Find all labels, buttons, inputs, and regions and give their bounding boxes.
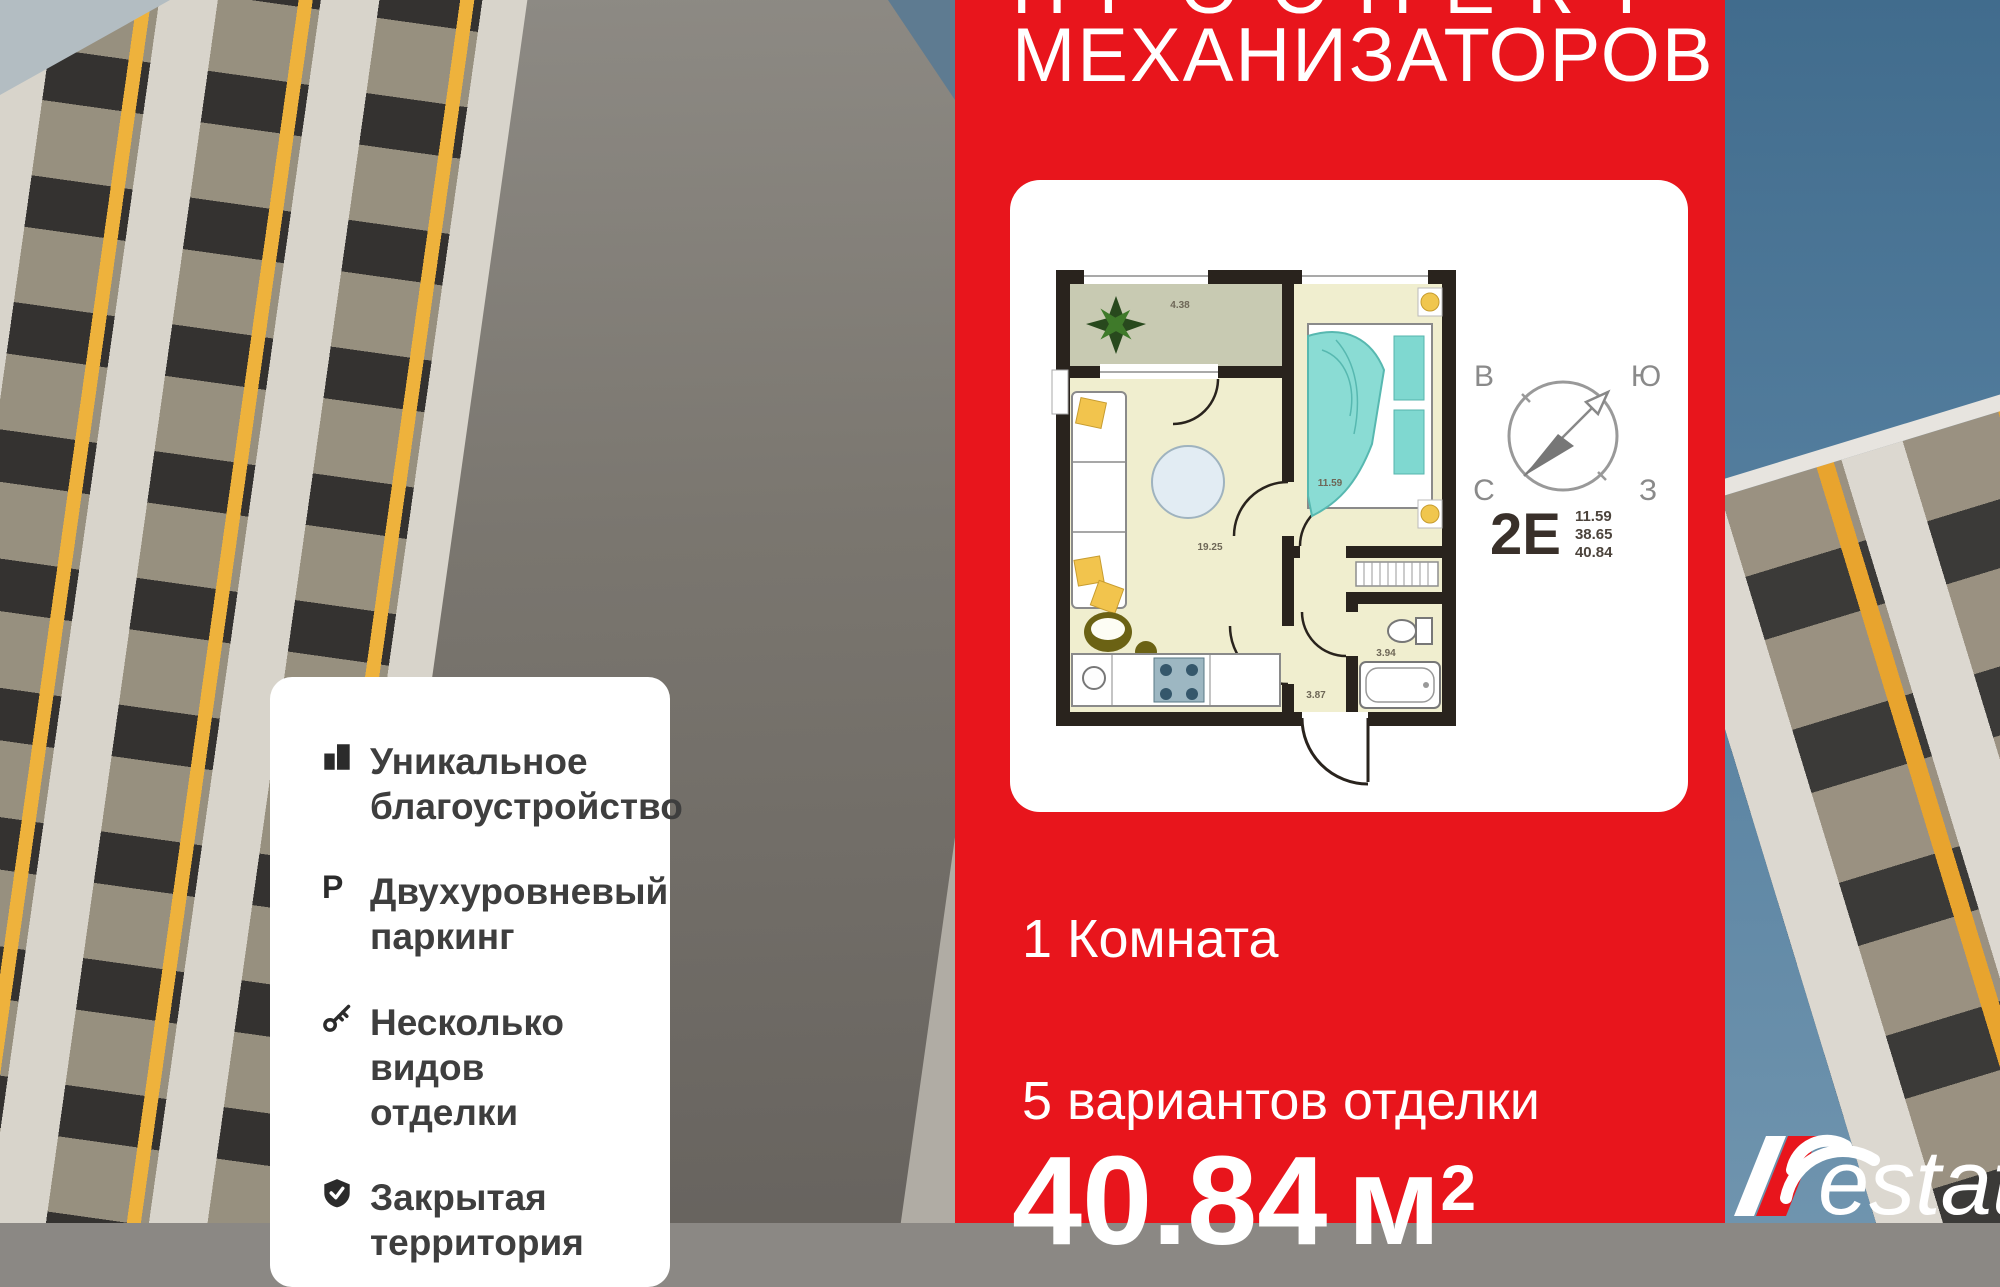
compass-south-label: Ю — [1631, 360, 1661, 393]
bedroom-area-label: 11.59 — [1318, 478, 1343, 489]
unit-areas-list: 11.59 38.65 40.84 — [1575, 506, 1613, 562]
unit-area-living: 11.59 — [1575, 508, 1613, 526]
round-table — [1152, 446, 1224, 518]
entry-door — [1302, 712, 1368, 784]
room-count: 1 Комната — [1022, 908, 1278, 970]
shield-icon — [322, 1178, 352, 1208]
bathroom-area-label: 3.94 — [1376, 648, 1396, 659]
toilet — [1388, 618, 1432, 644]
restate-watermark: estate — [1722, 1112, 2000, 1223]
brand-name-text: estate — [1818, 1132, 2000, 1223]
features-card: Уникальное благоустройство Р Двухуровнев… — [270, 677, 670, 1287]
living-area-label: 19.25 — [1197, 542, 1222, 553]
key-icon — [322, 1003, 352, 1033]
bathtub — [1360, 662, 1440, 708]
compass-east-label: В — [1474, 360, 1494, 393]
sofa — [1072, 392, 1126, 614]
complex-title-line2: МЕХАНИЗАТОРОВ — [1012, 18, 1715, 94]
feature-text: Закрытая территория — [370, 1175, 584, 1265]
feature-text: Несколько видов отделки — [370, 1000, 650, 1135]
right-building-facade — [1725, 336, 2000, 1223]
hallway-area-label: 3.87 — [1306, 690, 1326, 701]
kitchen-counter — [1072, 654, 1280, 706]
total-area: 40.84м2 — [1012, 1138, 1476, 1264]
floor-plan-card: 4.38 11.59 19.25 3.94 3.87 В Ю С З 2Е 11… — [1010, 180, 1688, 812]
feature-text: Уникальное благоустройство — [370, 739, 683, 829]
right-building-photo — [1725, 0, 2000, 1223]
parking-icon: Р — [322, 872, 352, 902]
area-superscript: 2 — [1441, 1152, 1477, 1224]
compass-icon: В Ю С З — [1460, 330, 1670, 508]
unit-info: 2Е 11.59 38.65 40.84 — [1490, 506, 1613, 564]
feature-item-parking: Р Двухуровневый паркинг — [322, 869, 650, 959]
balcony-area-label: 4.38 — [1170, 300, 1190, 311]
floor-plan: 4.38 11.59 19.25 3.94 3.87 — [1050, 266, 1462, 796]
finish-options: 5 вариантов отделки — [1022, 1070, 1540, 1132]
area-value: 40.84 — [1012, 1130, 1327, 1271]
building-icon — [322, 742, 352, 772]
feature-item-security: Закрытая территория — [322, 1175, 650, 1265]
unit-type-label: 2Е — [1490, 506, 1561, 564]
compass-west-label: З — [1639, 474, 1657, 507]
feature-item-finishes: Несколько видов отделки — [322, 1000, 650, 1135]
wardrobe — [1356, 562, 1438, 586]
area-unit: м — [1347, 1130, 1440, 1271]
feature-text: Двухуровневый паркинг — [370, 869, 668, 959]
feature-item-landscaping: Уникальное благоустройство — [322, 739, 650, 829]
unit-area-no-balcony: 38.65 — [1575, 526, 1613, 544]
unit-area-total: 40.84 — [1575, 544, 1613, 562]
